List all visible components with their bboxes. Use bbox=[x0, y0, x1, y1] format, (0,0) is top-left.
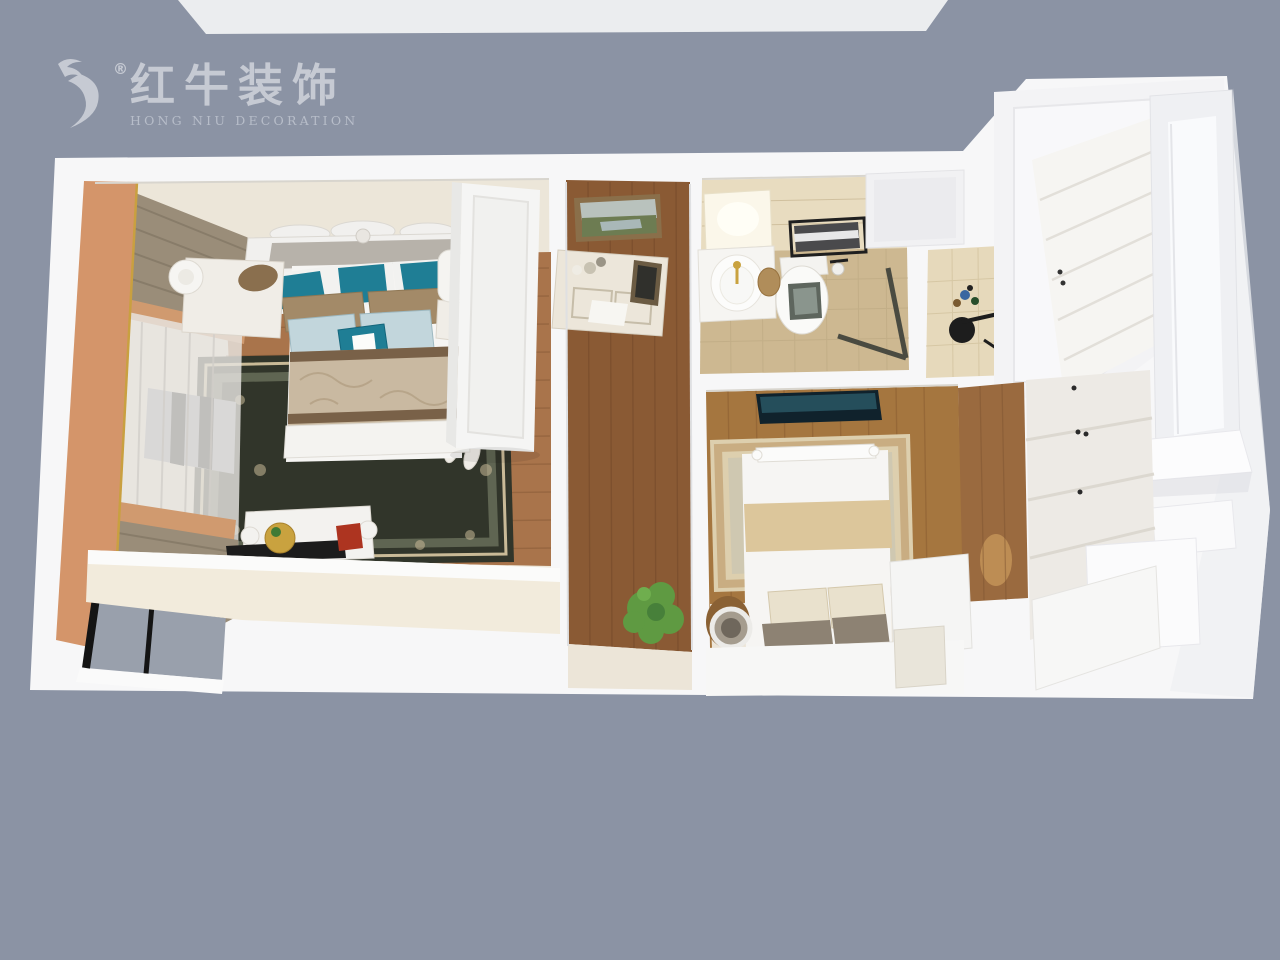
toiletry-bottle bbox=[953, 299, 961, 307]
door-handle bbox=[1076, 430, 1081, 435]
logo-english-text: HONG NIU DECORATION bbox=[130, 113, 358, 128]
plant-foliage-dark bbox=[647, 603, 665, 621]
bedroom-1 bbox=[56, 179, 560, 694]
bed-end-bench bbox=[226, 506, 377, 564]
toilet bbox=[776, 255, 828, 334]
footboard-roll bbox=[284, 420, 470, 458]
door-hinge bbox=[1061, 281, 1066, 286]
toilet-water bbox=[793, 287, 818, 315]
bedroom-2 bbox=[706, 385, 972, 696]
plant-foliage bbox=[623, 611, 645, 633]
vase bbox=[596, 257, 606, 267]
logo-chinese-text: 红牛装饰 bbox=[130, 62, 358, 109]
vanity bbox=[698, 190, 776, 322]
rail-knob bbox=[752, 450, 762, 460]
wardrobe-panel bbox=[468, 196, 528, 438]
floorplan-scene bbox=[0, 0, 1280, 960]
logo-text-block: 红牛装饰 HONG NIU DECORATION bbox=[130, 54, 358, 128]
nightstand-left bbox=[169, 258, 284, 338]
door-hinge bbox=[1058, 270, 1063, 275]
floor-light-glow bbox=[980, 534, 1012, 586]
bench-scroll bbox=[359, 521, 377, 539]
floorplan-render: ® 红牛装饰 HONG NIU DECORATION bbox=[0, 0, 1280, 960]
registered-mark: ® bbox=[113, 60, 128, 78]
plate-garnish bbox=[271, 527, 281, 537]
wall-painting bbox=[574, 194, 662, 242]
bull-icon bbox=[52, 54, 120, 132]
plant-foliage-light bbox=[637, 587, 651, 601]
mirror-stool bbox=[706, 596, 750, 648]
corridor-end-floor bbox=[568, 644, 692, 690]
table-cloth bbox=[588, 300, 628, 326]
bench-scroll bbox=[241, 527, 259, 545]
wardrobe-bedroom1 bbox=[446, 182, 540, 463]
toiletry-bottle bbox=[960, 290, 970, 300]
tv bbox=[756, 390, 882, 424]
brand-logo: ® 红牛装饰 HONG NIU DECORATION bbox=[52, 54, 358, 132]
bed2-runner bbox=[744, 500, 892, 552]
bull-logo-icon: ® bbox=[52, 54, 120, 132]
corridor-wood-floor bbox=[566, 180, 692, 652]
wall-niche-opening bbox=[894, 626, 946, 688]
wood-stool bbox=[758, 268, 780, 296]
rail-knob bbox=[869, 446, 879, 456]
tp-roll bbox=[832, 263, 844, 275]
toiletry-bottle bbox=[971, 297, 979, 305]
red-book bbox=[336, 523, 363, 551]
toiletry-bottle bbox=[967, 285, 973, 291]
top-wall-strip bbox=[178, 0, 948, 34]
console-table bbox=[552, 250, 668, 336]
bed-2 bbox=[742, 444, 896, 666]
round-mirror-center bbox=[721, 618, 741, 638]
tp-bar bbox=[830, 260, 848, 262]
storage-niche-inner bbox=[874, 177, 956, 242]
headboard-crest bbox=[356, 229, 370, 243]
door-handle bbox=[1084, 432, 1089, 437]
table-lamp-top bbox=[178, 269, 194, 285]
dish bbox=[572, 265, 582, 275]
gold-plate bbox=[265, 523, 295, 553]
wardrobe-shadow bbox=[450, 447, 540, 463]
door-handle bbox=[1072, 386, 1077, 391]
mirror-light-glow bbox=[717, 202, 759, 236]
photo-frame-inner bbox=[635, 265, 657, 300]
gold-faucet-head bbox=[733, 261, 741, 269]
vase bbox=[584, 262, 596, 274]
door-handle bbox=[1078, 490, 1083, 495]
corridor bbox=[552, 180, 692, 690]
